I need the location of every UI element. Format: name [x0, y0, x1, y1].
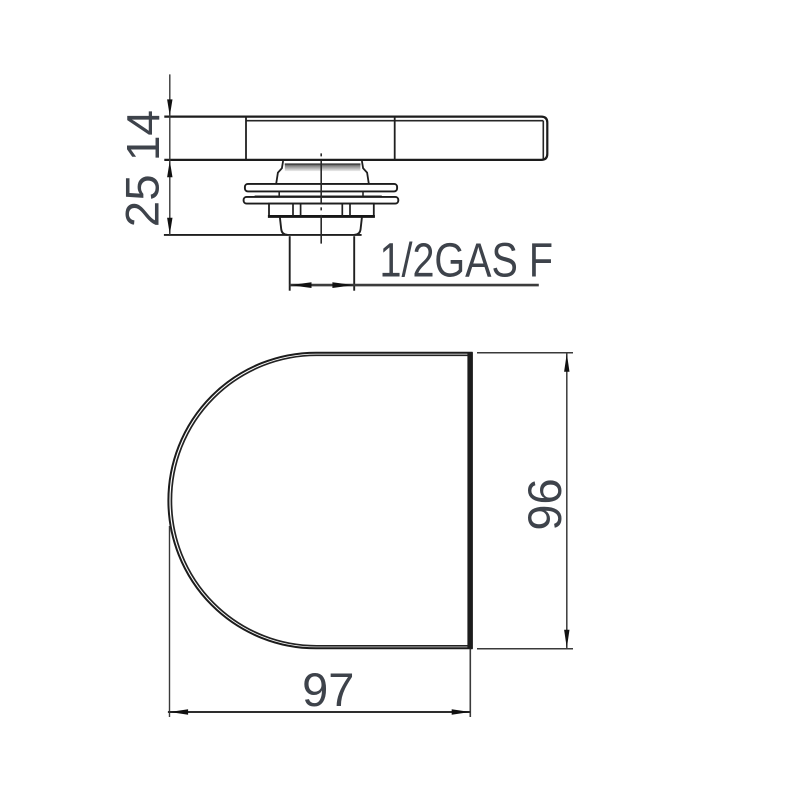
- svg-text:1/2GAS F: 1/2GAS F: [380, 234, 554, 287]
- svg-text:97: 97: [302, 663, 354, 716]
- svg-text:25: 25: [117, 174, 170, 227]
- svg-text:96: 96: [518, 478, 571, 530]
- svg-text:14: 14: [117, 110, 169, 161]
